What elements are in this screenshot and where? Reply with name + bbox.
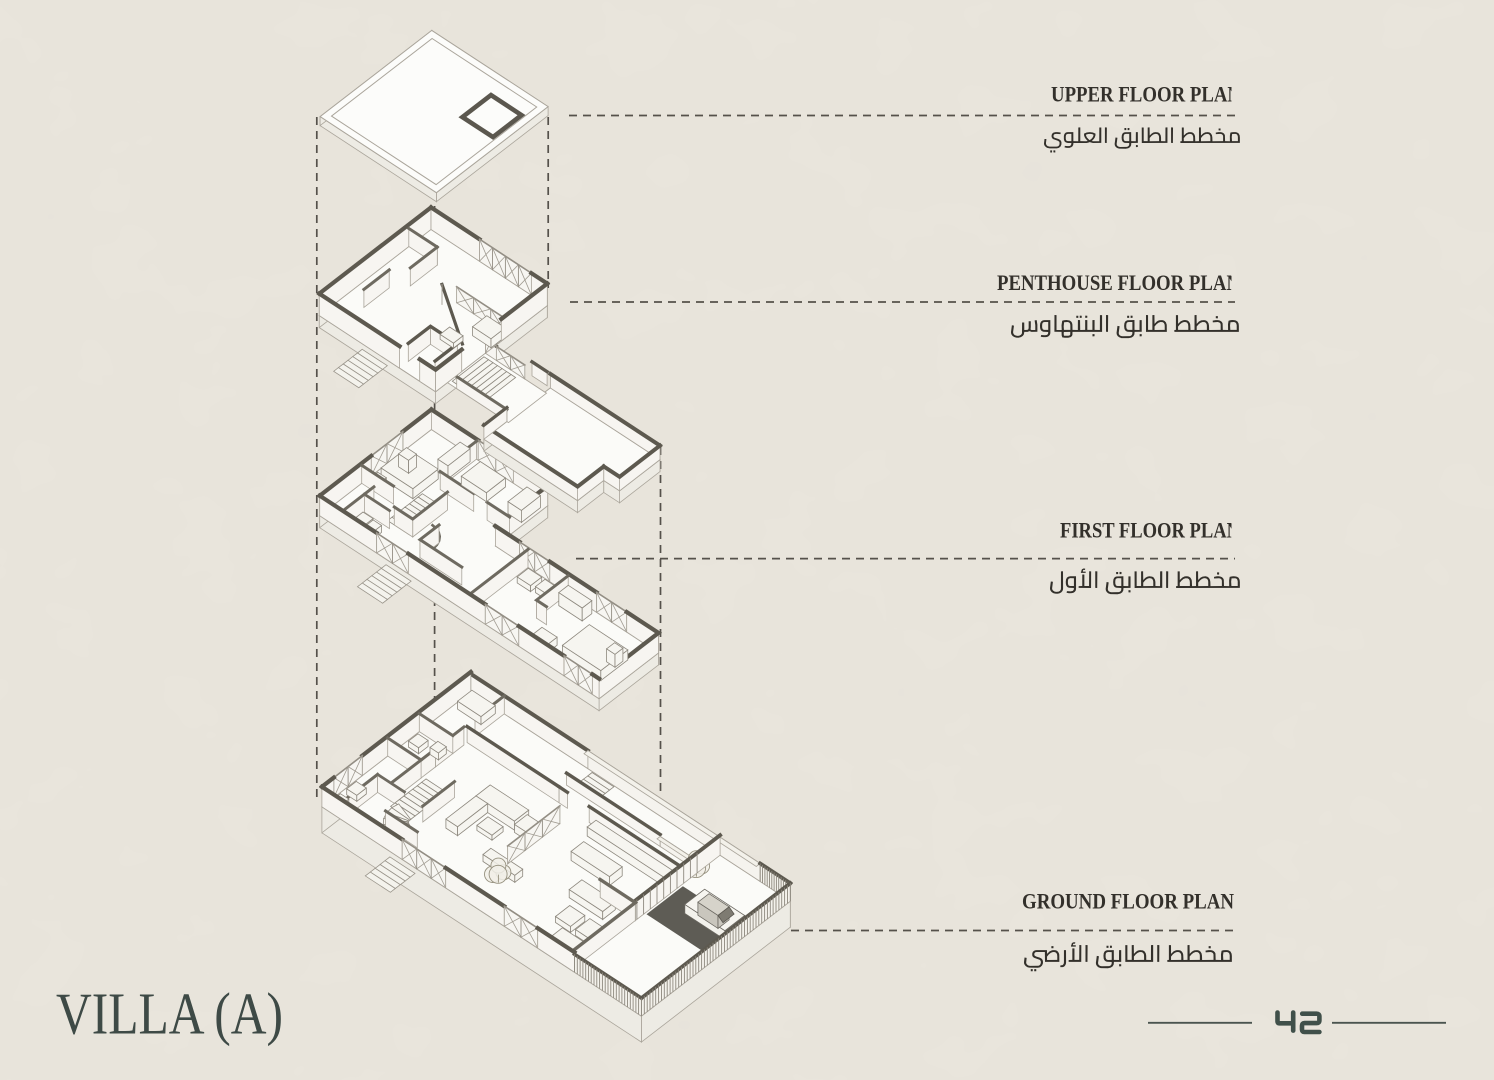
- svg-text:VILLA (A): VILLA (A): [56, 981, 283, 1047]
- svg-text:UPPER FLOOR PLAN: UPPER FLOOR PLAN: [1051, 82, 1241, 107]
- svg-text:FIRST FLOOR PLAN: FIRST FLOOR PLAN: [1060, 518, 1240, 543]
- svg-text:PENTHOUSE FLOOR PLAN: PENTHOUSE FLOOR PLAN: [997, 270, 1240, 295]
- svg-text:GROUND FLOOR PLAN: GROUND FLOOR PLAN: [1022, 889, 1234, 914]
